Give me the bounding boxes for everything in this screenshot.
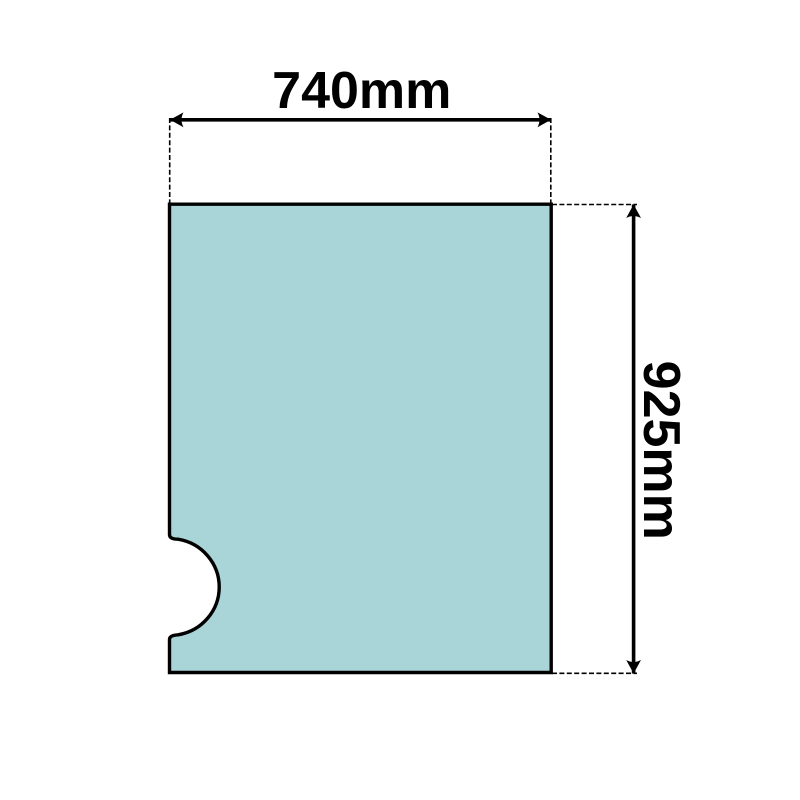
svg-text:925mm: 925mm <box>632 361 690 540</box>
svg-text:740mm: 740mm <box>272 62 451 120</box>
